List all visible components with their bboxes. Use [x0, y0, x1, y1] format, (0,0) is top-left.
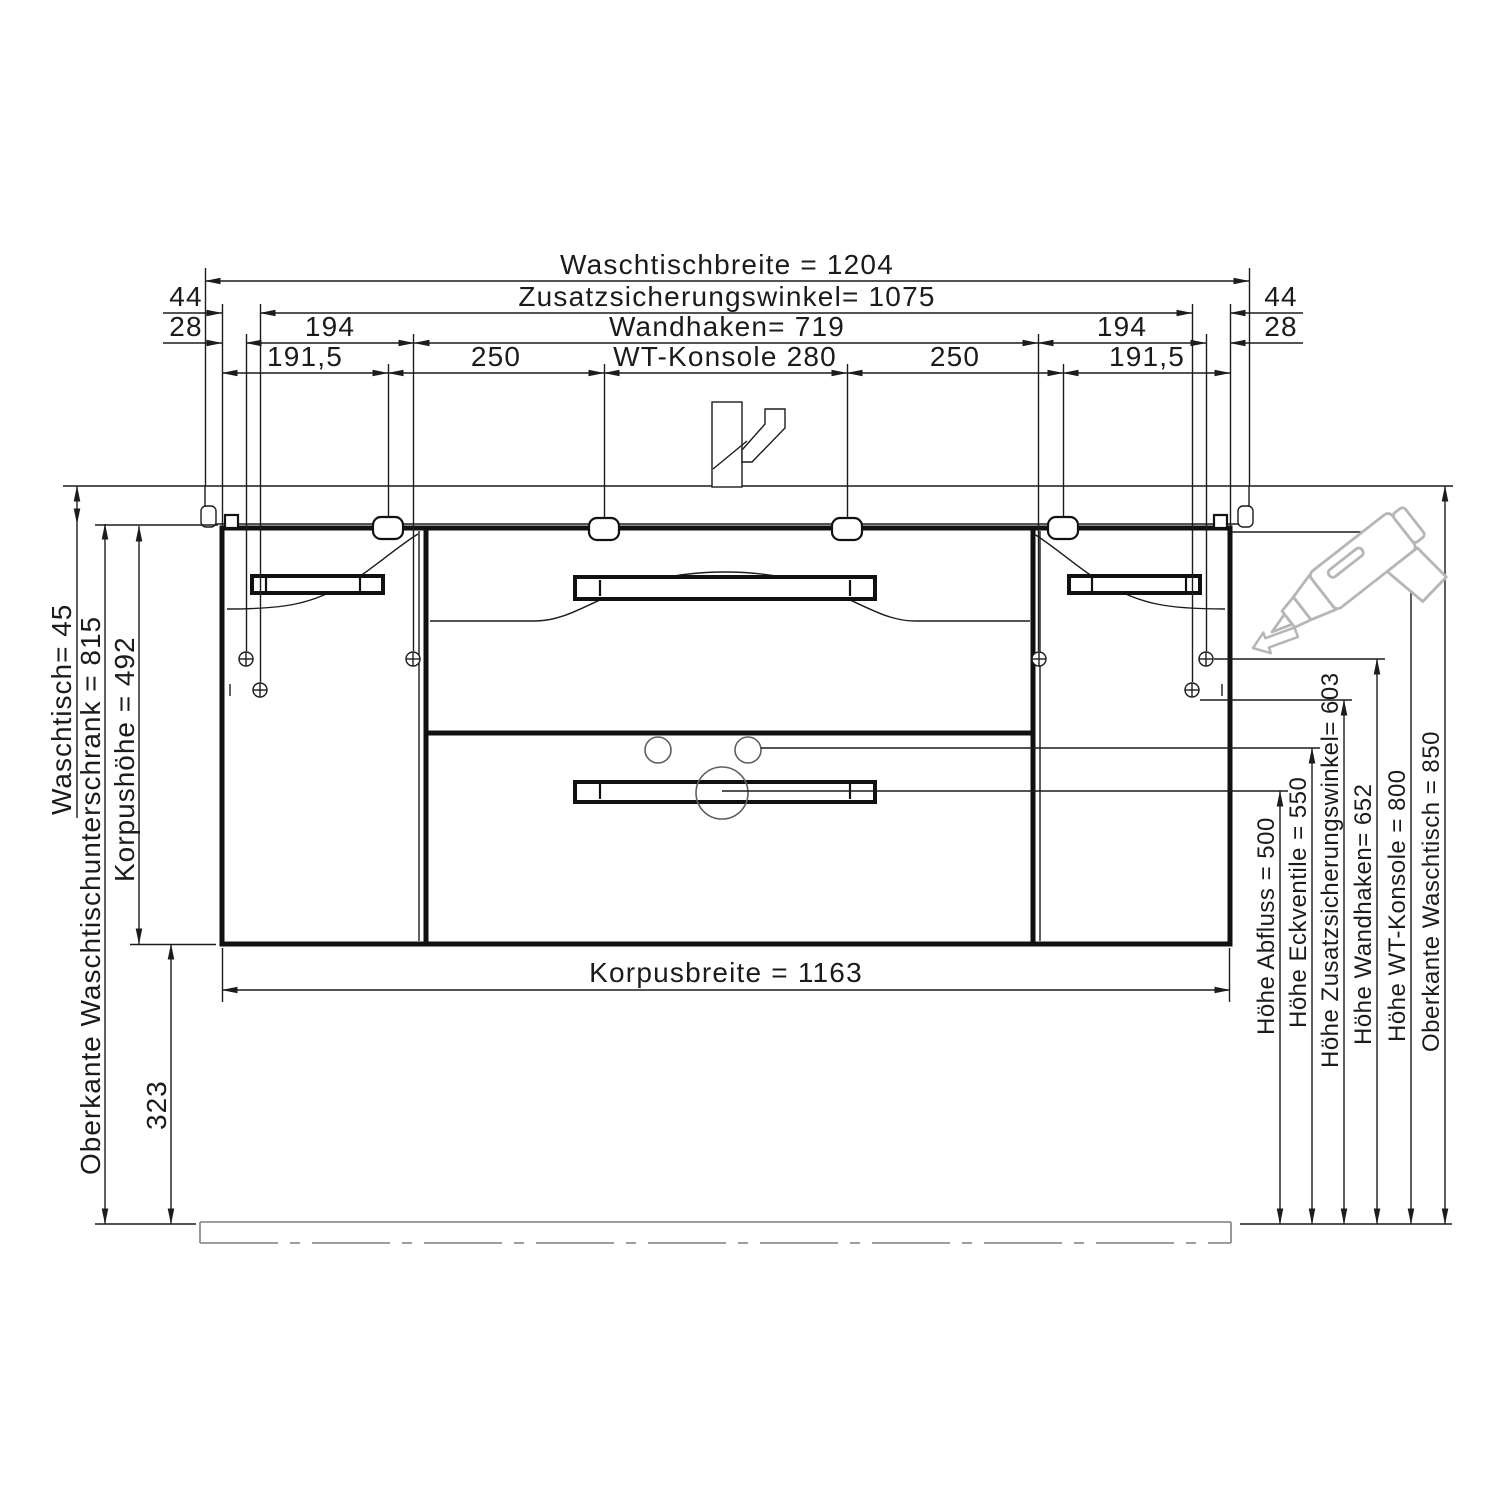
- dim-label: Waschtisch= 45: [46, 604, 77, 815]
- countertop-left-lip: [201, 506, 216, 527]
- wall-hook: [1048, 517, 1078, 539]
- console-bracket: [832, 518, 862, 540]
- dim-hoehe-abfluss: Höhe Abfluss = 500: [1253, 791, 1280, 1224]
- dim-zusatzsicherungswinkel: Zusatzsicherungswinkel= 1075 44 44: [163, 281, 1303, 313]
- floor-line: [95, 1222, 1452, 1243]
- upper-drawer-handle: [575, 577, 875, 599]
- dim-label: Höhe WT-Konsole = 800: [1384, 769, 1411, 1042]
- screw-mark: [1032, 652, 1046, 666]
- dim-label: 194: [305, 311, 355, 342]
- dim-wandhaken: Wandhaken= 719 194 194 28 28: [163, 311, 1303, 343]
- dim-label: Waschtischbreite = 1204: [560, 249, 894, 280]
- dim-label: 323: [141, 1080, 172, 1130]
- dim-waschtisch-staerke: Waschtisch= 45: [46, 486, 77, 818]
- countertop-right-lip: [1238, 506, 1253, 527]
- screw-mark: [406, 652, 420, 666]
- dim-korpusbreite: Korpusbreite = 1163: [222, 957, 1230, 990]
- dim-label: 44: [169, 281, 203, 312]
- dim-label: 44: [1264, 281, 1298, 312]
- screw-mark: [239, 652, 253, 666]
- left-corner-rail: [225, 515, 238, 528]
- vanity-dimension-drawing: Waschtischbreite = 1204 Zusatzsicherungs…: [0, 0, 1500, 1500]
- dim-label: 194: [1097, 311, 1147, 342]
- dim-label: Korpushöhe = 492: [109, 636, 140, 882]
- technical-drawing-page: Waschtischbreite = 1204 Zusatzsicherungs…: [0, 0, 1500, 1500]
- dim-label: Oberkante Waschtisch = 850: [1418, 731, 1445, 1052]
- screw-mark: [253, 683, 267, 697]
- screw-mark: [1185, 683, 1199, 697]
- dim-hoehe-wt-konsole: Höhe WT-Konsole = 800: [1384, 532, 1411, 1224]
- console-bracket: [589, 518, 619, 540]
- dim-hoehe-eckventile: Höhe Eckventile = 550: [1285, 748, 1312, 1224]
- left-door-handle: [252, 576, 383, 593]
- dim-323: 323: [141, 944, 172, 1224]
- dim-label: Korpusbreite = 1163: [589, 957, 863, 988]
- dim-label: Höhe Zusatzsicherungswinkel= 603: [1317, 672, 1344, 1068]
- dim-waschtischbreite: Waschtischbreite = 1204: [205, 249, 1249, 281]
- screw-mark: [1199, 652, 1213, 666]
- washbasin-countertop: [201, 486, 1253, 527]
- dim-label: WT-Konsole 280: [613, 341, 837, 372]
- right-door-handle: [1069, 576, 1200, 593]
- dim-hoehe-wandhaken: Höhe Wandhaken= 652: [1350, 659, 1377, 1224]
- dim-label: 250: [471, 341, 521, 372]
- dim-hoehe-zusatzsicherungswinkel: Höhe Zusatzsicherungswinkel= 603: [1317, 672, 1344, 1224]
- dim-label: 28: [1264, 311, 1298, 342]
- dim-wt-konsole: 191,5 250 WT-Konsole 280 250 191,5: [222, 341, 1230, 373]
- faucet-icon: [712, 402, 785, 487]
- dim-label: 28: [169, 311, 203, 342]
- dim-label: 191,5: [1109, 341, 1185, 372]
- dim-label: Höhe Abfluss = 500: [1253, 817, 1280, 1035]
- dim-label: Wandhaken= 719: [609, 311, 845, 342]
- dim-label: 191,5: [267, 341, 343, 372]
- dim-label: Höhe Wandhaken= 652: [1350, 784, 1377, 1045]
- dim-label: Höhe Eckventile = 550: [1285, 777, 1312, 1028]
- dim-label: Zusatzsicherungswinkel= 1075: [518, 281, 935, 312]
- dim-label: 250: [930, 341, 980, 372]
- lower-drawer-handle: [575, 782, 875, 802]
- dim-oberkante-unterschrank: Oberkante Waschtischunterschrank = 815: [75, 524, 106, 1224]
- right-corner-rail: [1214, 515, 1227, 528]
- wall-hook: [373, 517, 403, 539]
- vanity-cabinet: [222, 515, 1230, 944]
- dim-label: Oberkante Waschtischunterschrank = 815: [75, 616, 106, 1175]
- dim-korpushoehe: Korpushöhe = 492: [109, 526, 140, 944]
